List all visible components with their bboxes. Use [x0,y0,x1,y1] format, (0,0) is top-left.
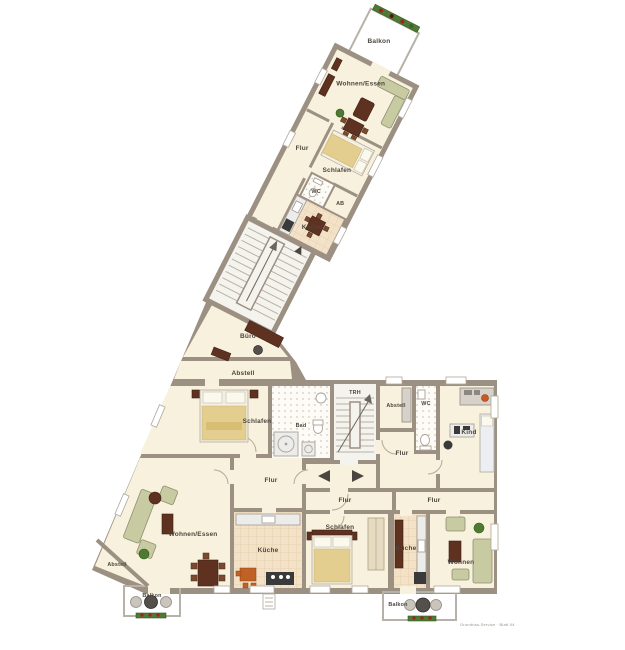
sink [418,390,425,399]
room-label-balkon-right: Balkon [388,602,407,608]
ottoman [452,569,469,580]
corridor-flur-right [396,492,494,510]
room-label-buero: Büro [240,333,256,340]
room-label-abstell-right: Abstell [386,403,406,409]
room-label-kueche-wing: Küche [302,224,323,231]
balcony-chair [431,600,442,611]
dining-table [198,560,218,586]
sofa [473,539,492,583]
room-label-kind: Kind [461,429,476,436]
toilet [421,435,430,446]
balcony-chair [131,597,142,608]
floor-plan-page: Balkon Wohnen/Essen Flur Schlafen WC AB … [0,0,625,650]
room-label-abstell-mid: Abstell [231,370,254,377]
balcony-door [400,586,416,594]
flower-box [373,4,420,32]
room-label-bad: Bad [296,423,307,429]
room-label-flur-bottom-right: Flur [427,497,440,504]
room-label-wohnen-essen-left: Wohnen/Essen [169,531,218,538]
room-label-schlafen-bottom: Schlafen [326,524,355,531]
stove [414,572,426,584]
entrance-vestibule [306,464,376,488]
floor-plan-drawing: Balkon Wohnen/Essen Flur Schlafen WC AB … [0,0,625,650]
room-label-trh: TRH [349,390,361,396]
armchair [446,517,465,531]
sink [316,393,326,403]
room-label-kueche-left: Küche [258,547,279,554]
room-label-abstell-left: Abstell [107,562,127,568]
office-chair [254,346,263,355]
room-label-schlafen-mid: Schlafen [243,418,272,425]
room-label-flur-bottom-mid: Flur [338,497,351,504]
cistern [313,420,323,425]
nightstand [250,390,258,398]
kitchen-sink [262,516,275,523]
room-label-wc-right: WC [421,401,430,407]
kitchen-table [240,568,256,581]
schlafen-left-furniture [192,390,258,442]
room-label-flur-wing: Flur [296,145,309,152]
room-label-ab-wing: AB [336,201,344,207]
office-chair [444,441,453,450]
room-label-balkon-top: Balkon [368,38,391,45]
nightstand [352,532,357,540]
room-label-flur-right: Flur [395,450,408,457]
balcony-table [416,598,430,612]
plant [474,523,484,533]
nightstand [192,390,200,398]
room-label-schlafen-wing: Schlafen [322,167,351,174]
nightstand [307,532,312,540]
room-label-wohnen-right: Wohnen [448,559,475,566]
room-label-kueche-right: Küche [396,545,417,552]
washing-machine [302,442,315,456]
room-label-wohnen-essen-wing: Wohnen/Essen [336,81,385,88]
balcony-chair [161,597,172,608]
watermark: Grundriss-Service · Blatt 04 [460,622,515,627]
chair [482,395,489,402]
building-wing: Balkon Wohnen/Essen Flur Schlafen WC AB … [204,0,443,342]
room-label-flur-left: Flur [264,477,277,484]
kitchen-counter [395,520,403,568]
room-label-wc-wing: WC [311,189,320,195]
cistern [420,446,431,450]
kitchen-sink [418,540,425,552]
plant [139,549,149,559]
room-label-balkon-left: Balkon [142,593,161,599]
round-table [149,492,161,504]
